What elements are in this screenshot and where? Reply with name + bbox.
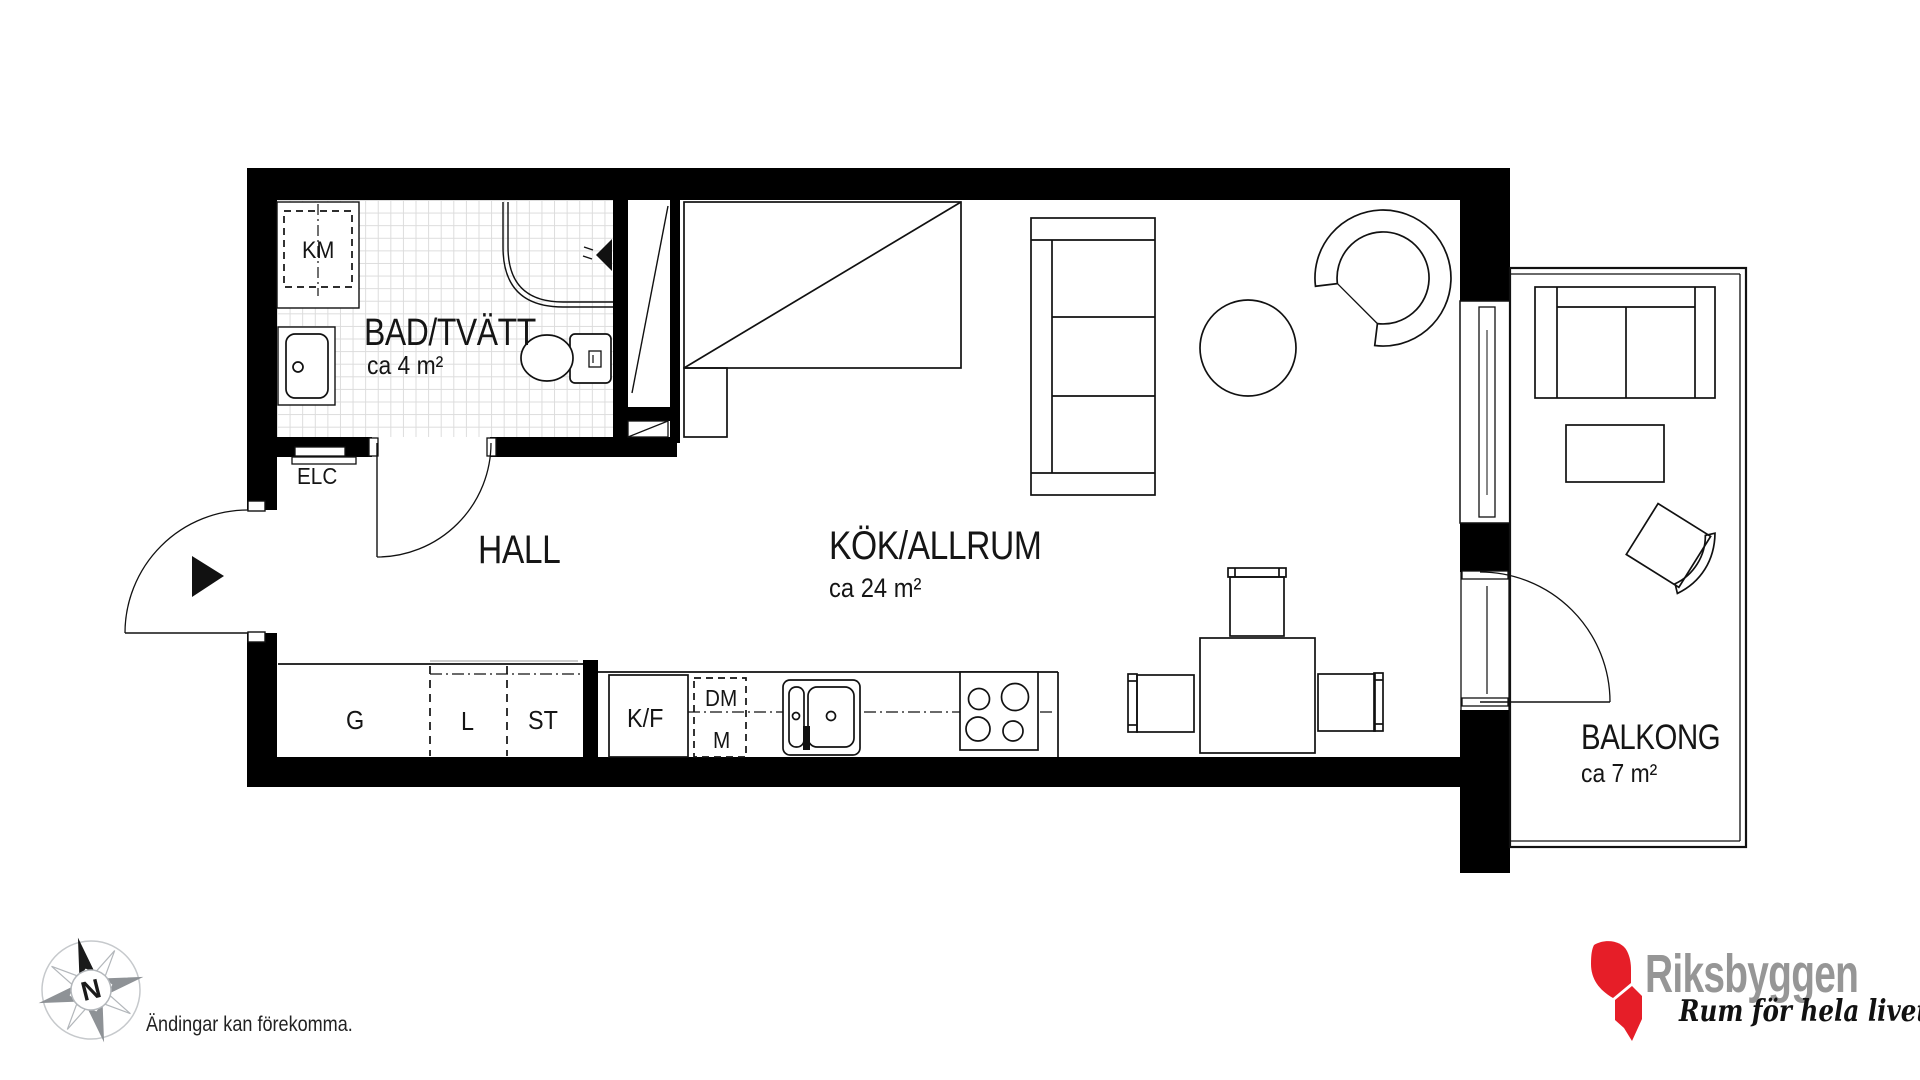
fixture-label-microwave: M [713,729,730,752]
fixture-label-electrical-cabinet: ELC [297,465,337,488]
bed [684,202,961,368]
dining-table [1200,638,1315,753]
room-label-hall: HALL [478,530,560,570]
faucet-icon [803,726,810,750]
armchair [1297,182,1479,364]
dining-chair-top [1228,568,1286,636]
fixture-label-cleaning-closet: ST [528,707,558,733]
living-window [1460,301,1510,523]
entrance-arrow-icon [192,556,224,597]
balcony-door [1461,571,1610,710]
electrical-cabinet [292,447,356,464]
balcony-table [1566,425,1664,482]
room-label-kitchen-livingroom: KÖK/ALLRUM [829,526,1041,566]
fixture-label-linen-closet: L [461,708,474,734]
sofa [1031,218,1155,495]
logo-ribbon-tail [1615,986,1642,1041]
stove [960,672,1038,750]
room-area-balcony: ca 7 m² [1581,760,1657,786]
compass-rose: N [33,932,149,1048]
balcony-chair [1623,499,1724,599]
coffee-table [1200,300,1296,396]
fixture-label-dishwasher: DM [705,687,737,710]
kitchen-sink [783,680,860,755]
bathroom-door [369,438,496,557]
riksbyggen-logo-mark [1586,941,1644,1043]
dining-chair-left [1128,674,1194,732]
floor-plan-page: BAD/TVÄTT ca 4 m² HALL KÖK/ALLRUM ca 24 … [0,0,1920,1080]
fixture-label-washing-machine: KM [302,239,334,263]
disclaimer-text: Ändingar kan förekomma. [146,1014,353,1035]
logo-ribbon-curl [1591,941,1631,998]
room-area-bathroom: ca 4 m² [367,352,443,378]
bathroom-sink [278,327,335,405]
nightstand [684,368,727,437]
brand-tagline: Rum för hela livet [1679,997,1920,1027]
shower [503,202,613,307]
balcony-sofa [1535,287,1715,398]
room-label-bathroom: BAD/TVÄTT [364,314,536,352]
fixture-label-wardrobe: G [346,707,364,733]
room-label-balcony: BALKONG [1581,720,1720,755]
dining-chair-right [1318,673,1383,731]
room-area-kitchen-livingroom: ca 24 m² [829,575,921,602]
ventilation-shaft [628,206,668,437]
brand-name: Riksbyggen [1645,947,1858,1001]
fixture-label-fridge-freezer: K/F [627,705,663,731]
shower-head-icon [596,239,612,271]
